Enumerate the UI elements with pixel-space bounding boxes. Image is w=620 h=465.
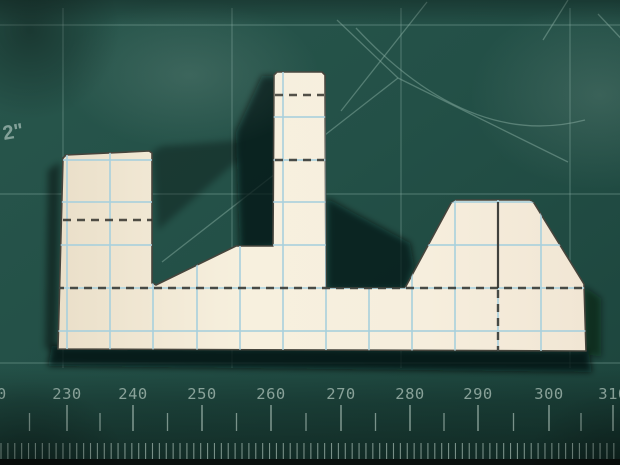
ruler-number-270: 270 [326,385,356,403]
ruler-number-290: 290 [463,385,493,403]
ruler-number-250: 250 [187,385,217,403]
scene: 2" [0,0,620,465]
photo-paper-cutout-on-cutting-mat: 2" [0,0,620,465]
ruler-number-280: 280 [395,385,425,403]
mat-inch-label: 2" [1,120,25,145]
ruler-number-260: 260 [256,385,286,403]
